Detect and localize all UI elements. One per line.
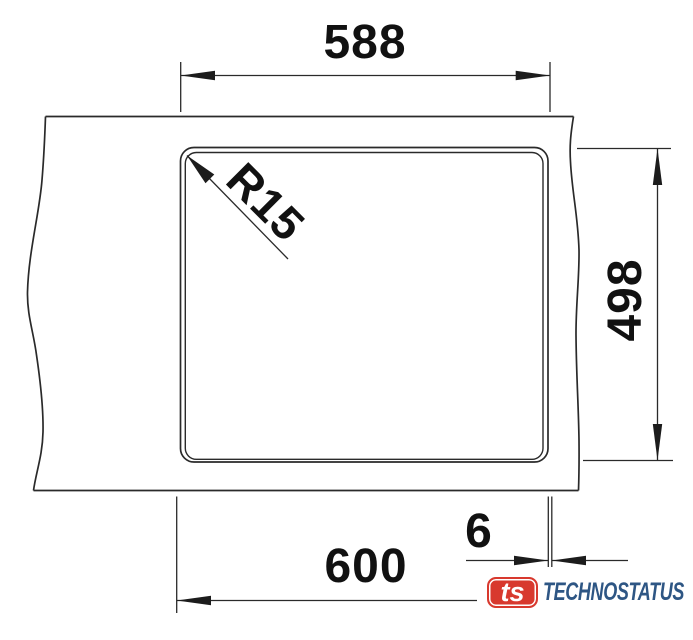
dim-label-cutout-width: 588: [265, 19, 465, 67]
countertop-left-broken-edge: [27, 117, 45, 491]
arrow-6-right: [552, 556, 586, 565]
arrow-588-left: [181, 71, 215, 80]
arrow-498-top: [653, 149, 662, 186]
brand-name: TECHNOSTATUS: [543, 578, 684, 607]
arrow-6-left: [514, 556, 548, 565]
dim-label-cutout-height: 498: [602, 200, 650, 400]
arrow-588-right: [516, 71, 550, 80]
arrow-600-left: [177, 596, 211, 605]
countertop-outline: [27, 117, 579, 491]
arrow-498-bottom: [653, 424, 662, 461]
dim-label-edge-offset: 6: [429, 508, 529, 556]
brand-monogram-icon: ts: [487, 577, 538, 608]
technical-drawing-canvas: 588 498 600 6 R15 ts TECHNOSTATUS: [0, 0, 693, 640]
countertop-right-broken-edge: [570, 117, 579, 491]
brand-logo: ts TECHNOSTATUS: [477, 574, 693, 610]
